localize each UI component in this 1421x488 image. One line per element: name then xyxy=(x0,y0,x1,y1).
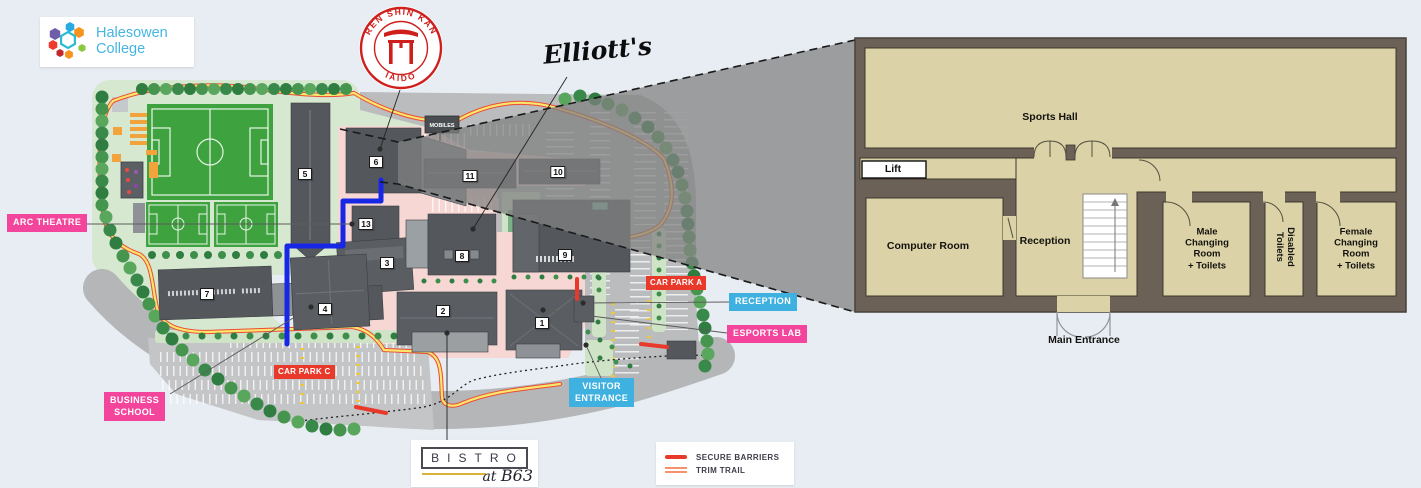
building-8 xyxy=(406,214,496,275)
room-disabled-toilets xyxy=(1265,202,1303,296)
lift-box xyxy=(862,161,926,178)
football-pitch-large xyxy=(147,104,273,200)
campus-map-page: MOBILES xyxy=(0,0,1421,488)
room-female-changing xyxy=(1317,202,1396,296)
floor-plan xyxy=(855,38,1406,337)
stairs xyxy=(1083,194,1127,278)
room-sports-hall xyxy=(865,48,1396,148)
building-esports-kiosk xyxy=(667,341,696,359)
campus-map-canvas: MOBILES xyxy=(0,0,1421,488)
dojo-logo: REN SHIN KAN IAIDO xyxy=(359,6,443,90)
football-pitch-small-left xyxy=(146,202,210,247)
room-male-changing xyxy=(1163,202,1250,296)
main-entrance-doors xyxy=(1057,312,1110,337)
room-computer xyxy=(866,198,1003,296)
building-1 xyxy=(506,290,594,358)
mobiles-sign-text: MOBILES xyxy=(429,123,454,129)
building-5 xyxy=(291,103,330,260)
football-pitch-small-right xyxy=(214,202,278,247)
